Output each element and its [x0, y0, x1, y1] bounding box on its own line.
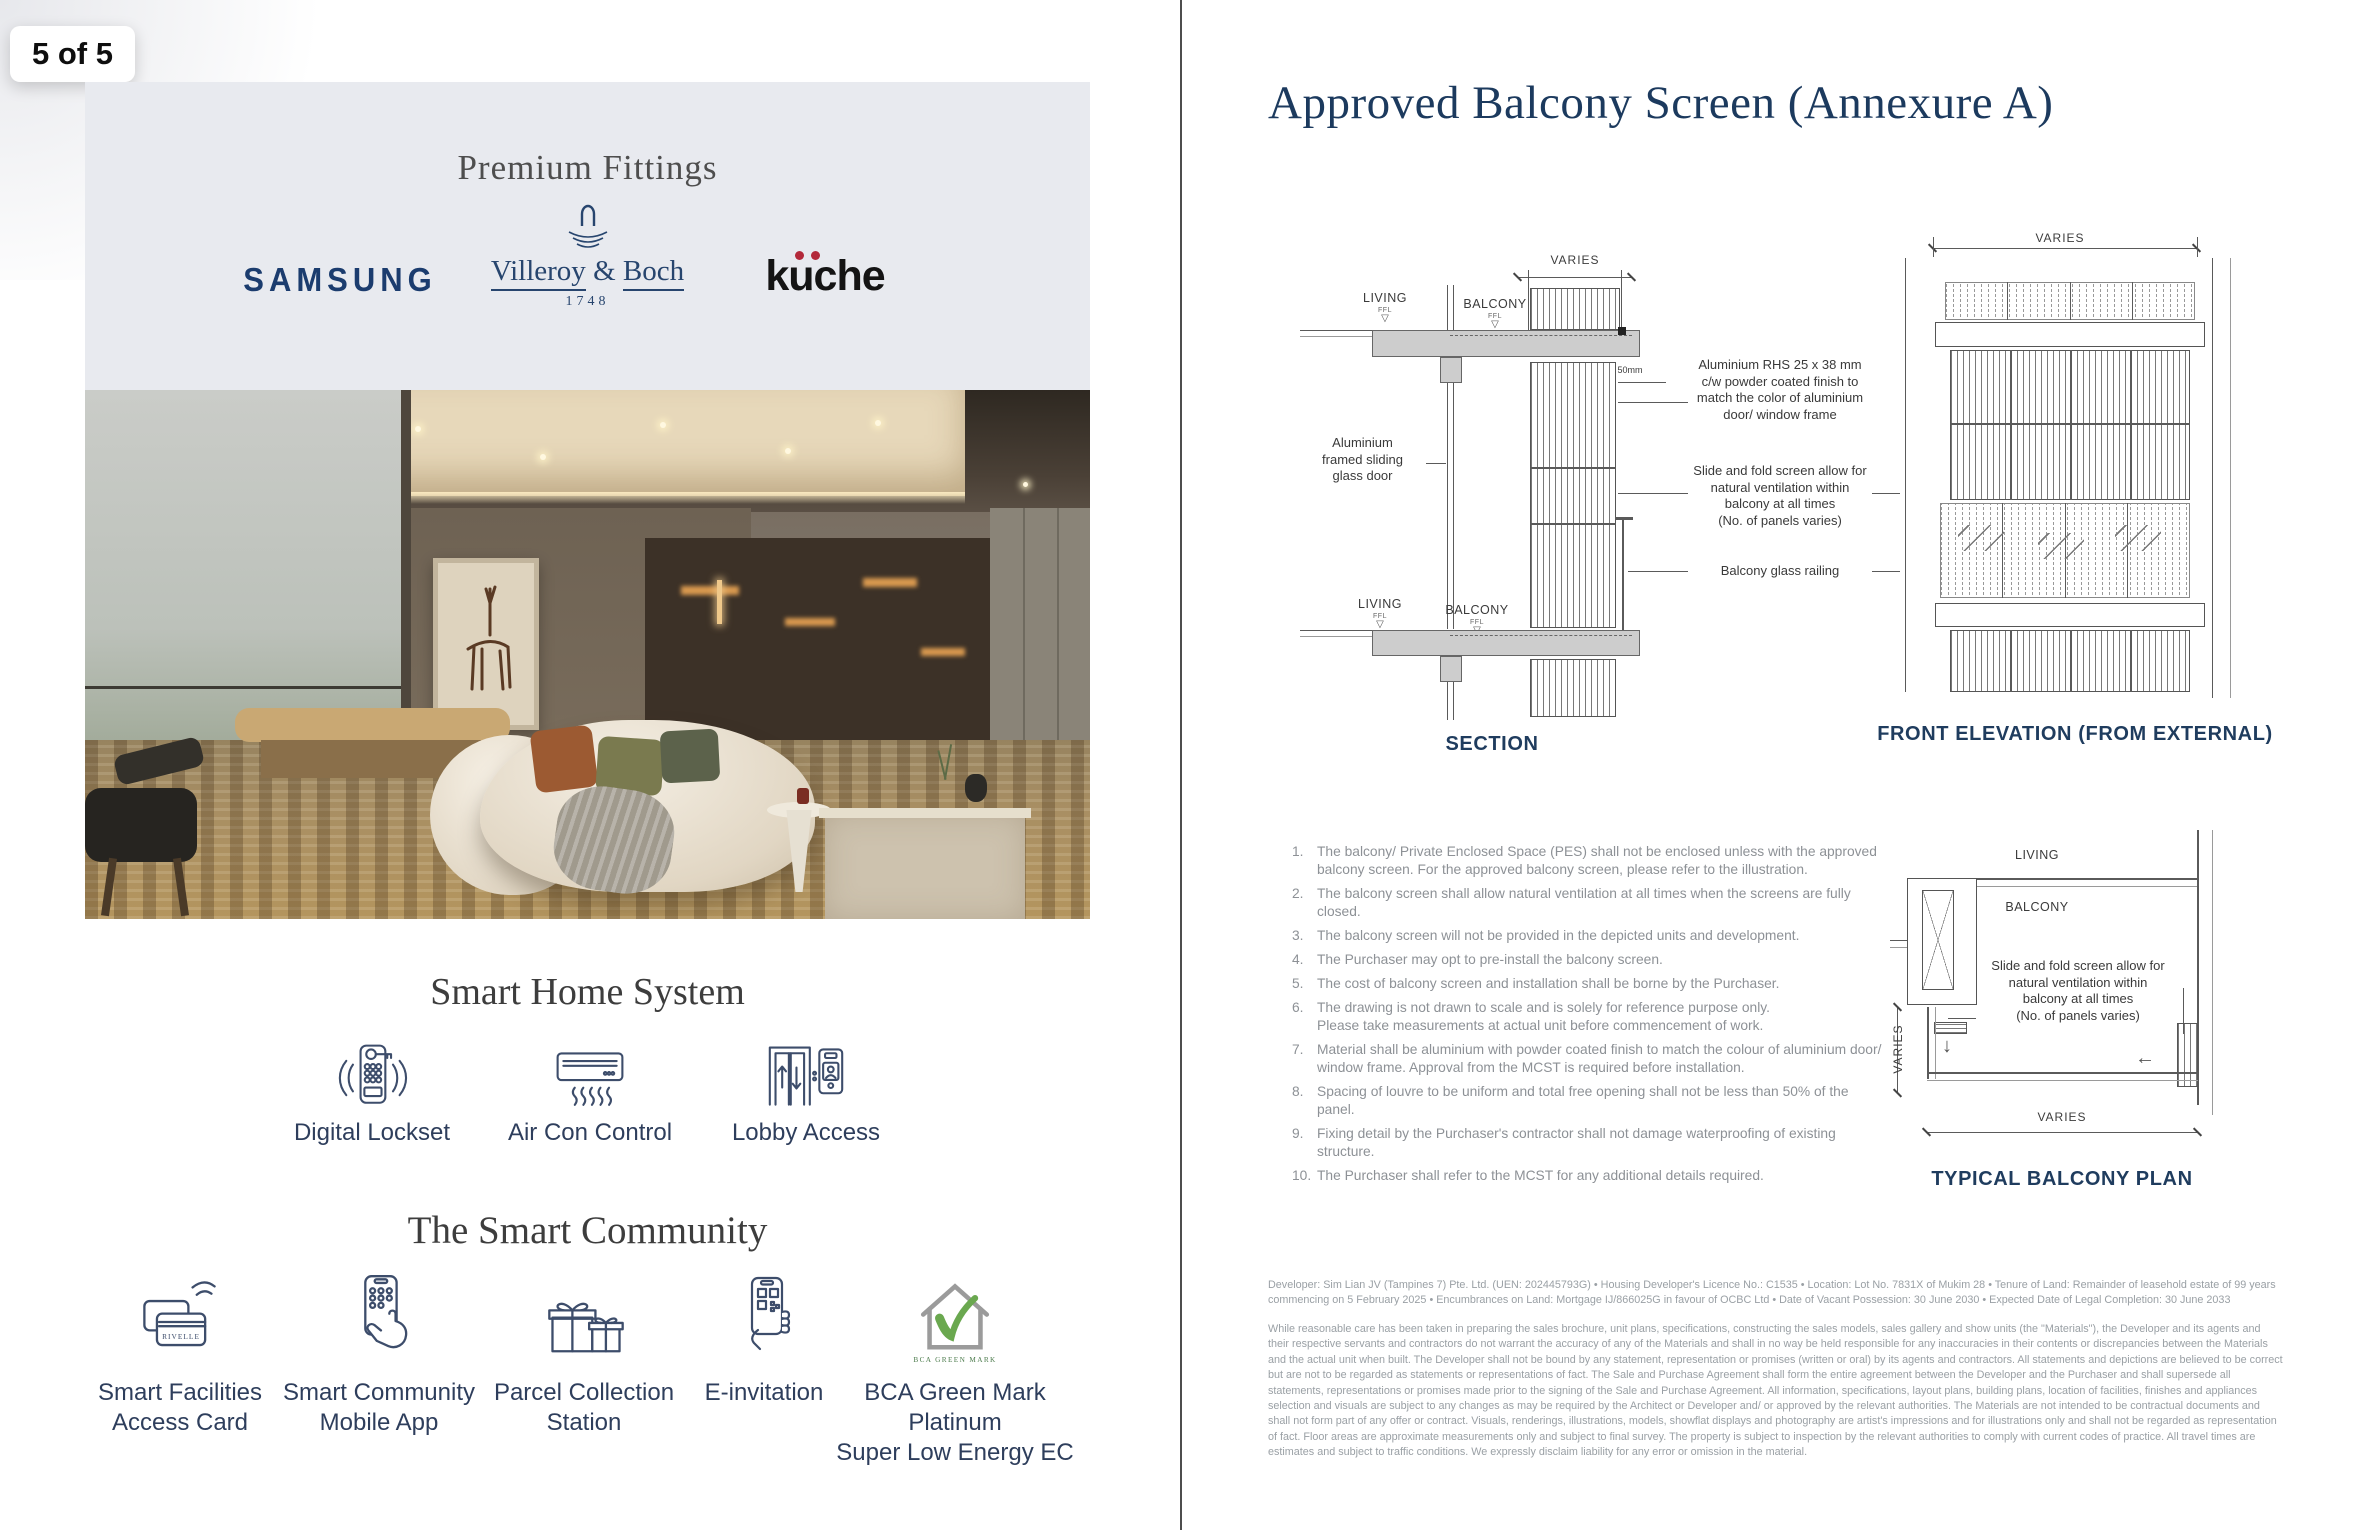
brochure-spread: 5 of 5 Premium Fittings SAMSUNG Villeroy… [0, 0, 2355, 1530]
notes-list: 1.The balcony/ Private Enclosed Space (P… [1292, 843, 1884, 1191]
community-item-label: Smart FacilitiesAccess Card [70, 1378, 290, 1438]
note-number: 10. [1292, 1167, 1317, 1185]
folded-screen-stack [1934, 1022, 1967, 1034]
note-number: 5. [1292, 975, 1317, 993]
ffl-triangle-icon [1370, 314, 1400, 323]
balcony-railing [1622, 520, 1624, 630]
access-card-icon: RIVELLE [136, 1278, 224, 1366]
plan-dim-varies-bottom: VARIES [1982, 1110, 2142, 1124]
plan-shaft-xbox [1922, 890, 1954, 990]
community-item-label: Smart CommunityMobile App [269, 1378, 489, 1438]
photo-pillow-rust [529, 724, 598, 793]
note-item: 8.Spacing of louvre to be uniform and to… [1292, 1083, 1884, 1119]
living-room-photo [85, 390, 1090, 919]
anno-aluminium-rhs: Aluminium RHS 25 x 38 mm c/w powder coat… [1690, 357, 1870, 423]
floor-line [1300, 336, 1372, 337]
smart-home-item-label: Lobby Access [696, 1118, 916, 1148]
plan-label: TYPICAL BALCONY PLAN [1912, 1168, 2212, 1191]
dim-ext [1933, 237, 1934, 257]
sliding-door-line [1447, 383, 1448, 629]
floor-line [1300, 330, 1372, 331]
photo-artwork-deer [438, 563, 534, 725]
page-indicator-badge: 5 of 5 [10, 26, 135, 82]
photo-spotlight [660, 422, 666, 428]
svg-text:BCA GREEN MARK: BCA GREEN MARK [913, 1356, 996, 1364]
plan-screen-panel [2177, 1023, 2198, 1087]
leader-line [1426, 463, 1446, 464]
sliding-door-line [1447, 285, 1448, 330]
photo-vase [965, 774, 987, 802]
balcony-screen-panel [1530, 362, 1616, 628]
elevation-drawing: VARIES FRONT ELEVATION (FROM EXTERNAL) [1900, 225, 2355, 765]
kuche-logo: kuche [745, 252, 905, 301]
ffl-triangle-icon [1480, 320, 1510, 329]
note-item: 3.The balcony screen will not be provide… [1292, 927, 1884, 945]
lower-screen-hatch [1530, 659, 1616, 717]
dim-ext [2197, 237, 2198, 257]
panel-divider [2130, 630, 2132, 692]
dim-line [1927, 1132, 2198, 1133]
section-dim-varies: VARIES [1495, 253, 1655, 267]
photo-shelf-light [785, 618, 835, 626]
slab-notch [1618, 327, 1626, 335]
glass-mark [2115, 525, 2161, 551]
smart-home-item-label: Air Con Control [480, 1118, 700, 1148]
plan-drawing: LIVING BALCONY Slide and fold screen all… [1890, 820, 2300, 1210]
panel-divider [2070, 282, 2071, 320]
room-label-living: LIVING [1345, 291, 1425, 305]
screen-rail [1530, 467, 1616, 469]
slab-band [1935, 322, 2205, 347]
dim-50mm: 50mm [1600, 365, 1660, 375]
villeroy-boch-year: 1748 [470, 294, 705, 310]
floor-line [1300, 636, 1372, 637]
photo-spotlight [415, 426, 421, 432]
photo-bench-seat [235, 708, 510, 742]
vb-word1: Villeroy [491, 255, 586, 291]
balcony-edge [1927, 1072, 2198, 1074]
villeroy-boch-tap-icon [560, 198, 616, 250]
section-label: SECTION [1342, 733, 1642, 756]
balcony-edge [1927, 1080, 2198, 1081]
note-text: The Purchaser may opt to pre-install the… [1317, 951, 1663, 969]
wall-line [2212, 830, 2213, 1115]
villeroy-boch-logo: Villeroy & Boch 1748 [470, 198, 705, 310]
note-number: 1. [1292, 843, 1317, 879]
label-line1: E-invitation [705, 1379, 824, 1406]
note-number: 8. [1292, 1083, 1317, 1119]
community-item-label: BCA Green Mark PlatinumSuper Low Energy … [815, 1378, 1095, 1468]
slab-dashed-line [1450, 335, 1632, 336]
panel-divider [2070, 630, 2072, 692]
section-drawing: VARIES LIVING FFL BALCONY FFL 50mm Alumi… [1300, 235, 1900, 765]
note-number: 2. [1292, 885, 1317, 921]
vb-word2: Boch [623, 255, 684, 291]
label-line2: Access Card [112, 1409, 248, 1436]
floor-slab [1372, 630, 1640, 656]
note-item: 10.The Purchaser shall refer to the MCST… [1292, 1167, 1884, 1185]
plan-balcony-label: BALCONY [1987, 900, 2087, 914]
villeroy-boch-name: Villeroy & Boch [470, 255, 705, 288]
note-text: The cost of balcony screen and installat… [1317, 975, 1779, 993]
leader-line [1948, 1018, 1976, 1019]
leader-line [1872, 571, 1900, 572]
samsung-logo: SAMSUNG [240, 261, 440, 300]
plan-living-label: LIVING [1987, 848, 2087, 862]
wall-stub [1890, 947, 1907, 948]
photo-shelf-light [681, 586, 739, 595]
panel-divider [2010, 350, 2012, 500]
green-mark-icon: BCA GREEN MARK [905, 1268, 1005, 1372]
wall-stub [1890, 940, 1907, 941]
photo-shelf-light [921, 648, 965, 656]
wall-edge-line [1905, 258, 1906, 692]
photo-spotlight [875, 420, 881, 426]
note-text: The balcony screen will not be provided … [1317, 927, 1799, 945]
down-arrow: ↓ [1942, 1036, 1952, 1056]
plan-annotation: Slide and fold screen allow for natural … [1973, 958, 2183, 1024]
digital-lockset-icon [332, 1038, 412, 1118]
note-item: 7.Material shall be aluminium with powde… [1292, 1041, 1884, 1077]
photo-spotlight [540, 454, 546, 460]
photo-spotlight [785, 448, 791, 454]
e-invitation-icon [724, 1272, 808, 1368]
panel-divider [2132, 282, 2133, 320]
note-item: 2.The balcony screen shall allow natural… [1292, 885, 1884, 921]
wall-edge-line [2212, 258, 2213, 698]
photo-cove-glow [333, 492, 965, 504]
page-divider [1180, 0, 1182, 1530]
ffl-marker: FFL [1480, 313, 1510, 329]
photo-spotlight [1023, 482, 1028, 487]
wall-edge-line [2230, 258, 2231, 698]
leader-line [1618, 493, 1688, 494]
left-arrow: ← [2135, 1048, 2155, 1068]
mid-rail [1950, 423, 2190, 425]
leader-line [1618, 402, 1688, 403]
photo-table-decor [797, 788, 809, 804]
note-text: Material shall be aluminium with powder … [1317, 1041, 1884, 1077]
smart-community-title: The Smart Community [85, 1208, 1090, 1253]
kuche-umlaut-dot [811, 251, 820, 260]
photo-pillow-green [660, 729, 721, 784]
balcony-edge [1935, 1007, 1936, 1079]
room-label-balcony: BALCONY [1432, 603, 1522, 617]
right-page-title: Approved Balcony Screen (Annexure A) [1268, 76, 2053, 130]
screen-rail [1530, 523, 1616, 525]
kuche-umlaut-dot [795, 251, 804, 260]
note-number: 9. [1292, 1125, 1317, 1161]
sliding-door-line [1453, 682, 1454, 720]
elevation-label: FRONT ELEVATION (FROM EXTERNAL) [1865, 723, 2285, 746]
smart-home-title: Smart Home System [85, 970, 1090, 1014]
glass-mark [1958, 525, 2004, 551]
glass-mark [2038, 533, 2084, 559]
dim-line-small [1618, 382, 1666, 383]
slab-dashed-line [1450, 635, 1632, 636]
leader-line [1872, 493, 1900, 494]
aircon-icon [550, 1042, 630, 1122]
smart-home-item-label: Digital Lockset [262, 1118, 482, 1148]
label-line2: Station [547, 1409, 622, 1436]
label-line1: Smart Facilities [98, 1379, 262, 1406]
note-item: 1.The balcony/ Private Enclosed Space (P… [1292, 843, 1884, 879]
anno-glass-railing: Balcony glass railing [1690, 563, 1870, 580]
photo-artwork-frame [433, 558, 539, 730]
disclaimer-text: While reasonable care has been taken in … [1268, 1322, 2284, 1461]
svg-text:RIVELLE: RIVELLE [162, 1332, 200, 1341]
panel-divider [2130, 350, 2132, 500]
ffl-marker: FFL [1365, 613, 1395, 629]
page-indicator-text: 5 of 5 [32, 36, 113, 71]
slab-band [1935, 603, 2205, 627]
leader-line [1628, 571, 1688, 572]
photo-ceiling-cove [333, 390, 965, 496]
photo-island [825, 814, 1025, 919]
note-item: 6.The drawing is not drawn to scale and … [1292, 999, 1884, 1035]
note-number: 4. [1292, 951, 1317, 969]
note-text: Spacing of louvre to be uniform and tota… [1317, 1083, 1884, 1119]
railing-cap [1615, 517, 1633, 520]
note-text: The Purchaser shall refer to the MCST fo… [1317, 1167, 1764, 1185]
note-text: The balcony/ Private Enclosed Space (PES… [1317, 843, 1884, 879]
screen-edge [1528, 270, 1529, 330]
upper-screen-hatch [1530, 288, 1620, 330]
note-item: 4.The Purchaser may opt to pre-install t… [1292, 951, 1884, 969]
note-number: 6. [1292, 999, 1317, 1035]
panel-divider [2007, 282, 2008, 320]
note-number: 7. [1292, 1041, 1317, 1077]
dim-line [1518, 277, 1632, 278]
ffl-marker: FFL [1370, 307, 1400, 323]
photo-balcony-rail [85, 686, 405, 689]
photo-island-counter [819, 808, 1031, 818]
anno-slide-fold: Slide and fold screen allow for natural … [1690, 463, 1870, 529]
developer-info: Developer: Sim Lian JV (Tampines 7) Pte.… [1268, 1278, 2284, 1309]
room-label-living: LIVING [1340, 597, 1420, 611]
parcel-icon [542, 1280, 630, 1368]
kuche-text: kuche [765, 252, 884, 300]
wall-below-slab [1440, 357, 1462, 383]
vb-amp: & [593, 255, 616, 287]
note-text: The balcony screen shall allow natural v… [1317, 885, 1884, 921]
panel-divider [2070, 350, 2072, 500]
note-text: The drawing is not drawn to scale and is… [1317, 999, 1770, 1035]
premium-fittings-title: Premium Fittings [85, 148, 1090, 188]
sliding-door-line [1453, 285, 1454, 330]
label-line1: Parcel Collection [494, 1379, 674, 1406]
ffl-triangle-icon [1365, 620, 1395, 629]
label-line1: Smart Community [283, 1379, 475, 1406]
mobile-app-icon [338, 1272, 426, 1368]
label-line2: Mobile App [320, 1409, 439, 1436]
dim-line [1933, 248, 2197, 249]
photo-chair-seat [85, 788, 197, 862]
note-text: Fixing detail by the Purchaser's contrac… [1317, 1125, 1884, 1161]
anno-sliding-door: Aluminium framed sliding glass door [1300, 435, 1425, 485]
sliding-door-line [1453, 383, 1454, 629]
note-item: 9.Fixing detail by the Purchaser's contr… [1292, 1125, 1884, 1161]
elevation-dim-varies: VARIES [1960, 231, 2160, 245]
plan-dim-varies-left: VARIES [1891, 1019, 1905, 1079]
room-label-balcony: BALCONY [1450, 297, 1540, 311]
photo-wall-sconce [717, 580, 722, 624]
note-item: 5.The cost of balcony screen and install… [1292, 975, 1884, 993]
wall-below-slab [1440, 656, 1462, 682]
screen-edge [1621, 270, 1622, 330]
lobby-access-icon [766, 1038, 846, 1118]
label-line2: Super Low Energy EC [836, 1439, 1073, 1466]
photo-shelf-light [863, 578, 917, 587]
sliding-door-line [1447, 682, 1448, 720]
note-number: 3. [1292, 927, 1317, 945]
panel-divider [2010, 630, 2012, 692]
floor-line [1300, 630, 1372, 631]
label-line1: BCA Green Mark Platinum [864, 1379, 1045, 1436]
balcony-edge [1927, 1007, 1929, 1079]
